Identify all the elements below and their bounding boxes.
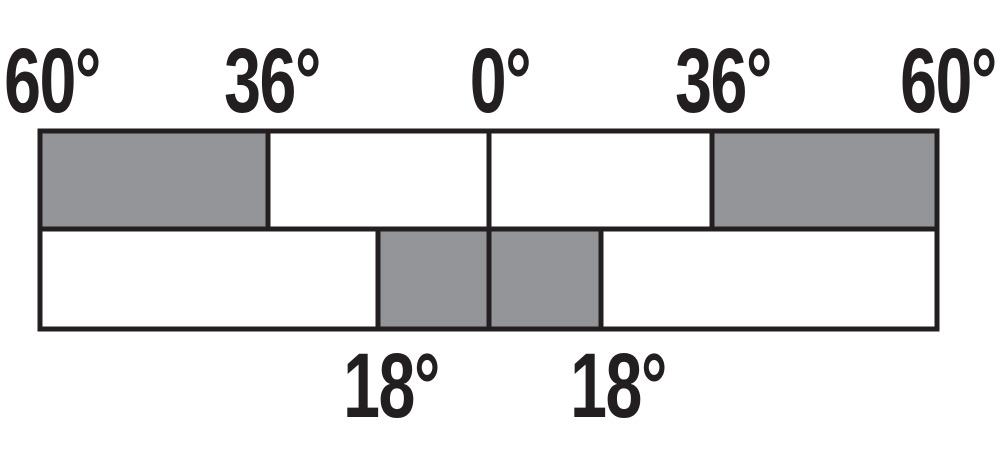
- lower-strip-segment-18-0-left: [378, 229, 489, 329]
- angle-strip-diagram: 60° 36° 0° 36° 60° 18° 18°: [0, 0, 1000, 452]
- upper-strip-segment-36-0-left: [268, 131, 489, 229]
- upper-strip-segment-60-36-left: [40, 131, 268, 229]
- lower-strip-segment-0-18-right: [489, 229, 601, 329]
- axis-label-0: 0°: [421, 35, 579, 127]
- lower-strip-segment-18-60-right: [601, 229, 937, 329]
- upper-strip-segment-0-36-right: [489, 131, 712, 229]
- axis-label-60-right: 60°: [869, 35, 1000, 127]
- axis-label-60-left: 60°: [0, 35, 131, 127]
- axis-label-18-right: 18°: [539, 340, 697, 432]
- axis-label-36-left: 36°: [193, 35, 351, 127]
- upper-strip-segment-36-60-right: [712, 131, 937, 229]
- axis-label-18-left: 18°: [312, 340, 470, 432]
- lower-strip-segment-60-18-left: [40, 229, 378, 329]
- axis-label-36-right: 36°: [644, 35, 802, 127]
